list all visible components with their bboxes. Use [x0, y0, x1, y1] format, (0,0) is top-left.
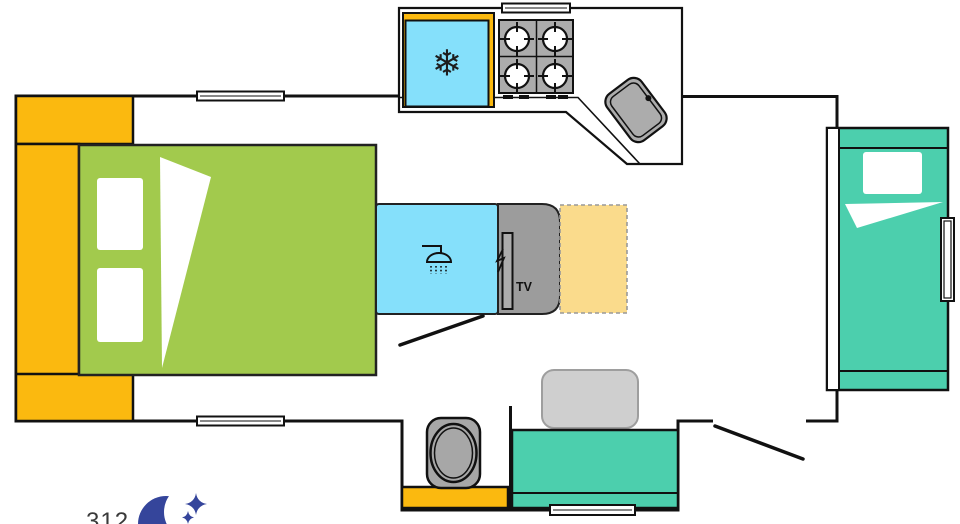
window-kitchen: [502, 4, 570, 13]
rear-bed-pillow: [863, 152, 922, 194]
model-number: 312: [86, 508, 129, 524]
wall-right-body: [682, 97, 837, 422]
snowflake-icon: ❄: [432, 43, 462, 84]
bathroom-door: [400, 316, 483, 345]
entry-door: [715, 426, 803, 459]
vanity-counter: [402, 487, 508, 508]
window-dinette: [550, 505, 635, 515]
tv-screen: [503, 233, 513, 309]
wardrobe-cabinet-top: [16, 96, 133, 144]
wardrobe-cabinet-left: [16, 144, 79, 376]
tv-label: TV: [516, 280, 533, 294]
dinette-bench: [512, 430, 678, 508]
pillow-bottom: [97, 268, 143, 342]
window-front-bottom: [197, 417, 284, 426]
pillow-top: [97, 178, 143, 250]
wardrobe-cabinet-bottom: [16, 374, 133, 421]
optional-wardrobe-area: [560, 205, 627, 313]
toilet-seat: [431, 424, 477, 482]
window-rear: [941, 218, 954, 301]
rear-bed-side-rail: [827, 128, 839, 390]
floorplan-svg: ❄: [0, 0, 960, 524]
shower: [376, 204, 498, 314]
stove: [499, 20, 573, 93]
window-front-top: [197, 92, 284, 101]
dinette-table: [542, 370, 638, 428]
caravan-floorplan: ❄: [0, 0, 960, 524]
